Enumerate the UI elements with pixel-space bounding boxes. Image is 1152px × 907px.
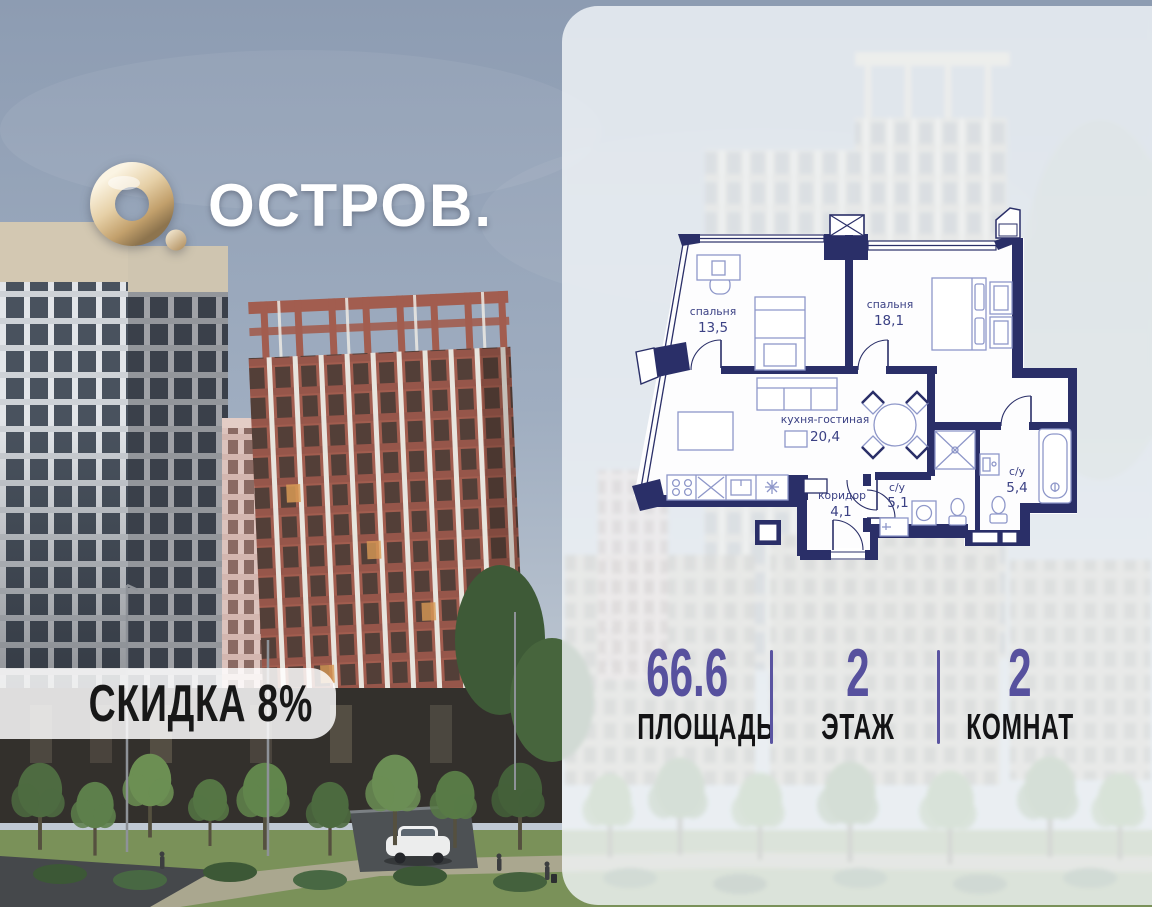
- stat-floor-label: ЭТАЖ: [776, 709, 940, 745]
- room-name-bathroom1: с/у: [889, 481, 906, 494]
- promo-card: ОСТРОВ. СКИДКА 8%: [0, 0, 1152, 907]
- room-area-bathroom1: 5,1: [887, 495, 908, 511]
- room-name-bedroom2: спальня: [867, 298, 913, 311]
- brand-logo-icon: [80, 150, 192, 254]
- discount-badge-label: СКИДКА 8%: [89, 678, 313, 730]
- room-area-kitchen-living: 20,4: [810, 429, 840, 445]
- stat-area: 66.6 ПЛОЩАДЬ: [605, 641, 769, 745]
- stat-floor-value: 2: [846, 641, 869, 705]
- room-name-kitchen-living: кухня-гостиная: [781, 413, 869, 426]
- stat-rooms: 2 КОМНАТ: [938, 641, 1102, 745]
- stats-divider-1: [770, 650, 773, 744]
- room-area-bedroom2: 18,1: [874, 313, 904, 329]
- stat-rooms-label: КОМНАТ: [938, 709, 1102, 745]
- stat-floor: 2 ЭТАЖ: [776, 641, 940, 745]
- stat-area-label: ПЛОЩАДЬ: [605, 709, 769, 745]
- floor-plan: спальня 13,5 спальня 18,1 кухня-гостиная…: [628, 198, 1108, 560]
- room-area-corridor: 4,1: [830, 504, 851, 520]
- brand-name: ОСТРОВ.: [208, 176, 493, 236]
- discount-badge: СКИДКА 8%: [0, 668, 336, 739]
- room-name-bathroom2: с/у: [1009, 465, 1026, 478]
- room-area-bedroom1: 13,5: [698, 320, 728, 336]
- stat-rooms-value: 2: [1008, 641, 1031, 705]
- stat-area-value: 66.6: [646, 641, 728, 705]
- room-name-corridor: коридор: [818, 489, 866, 502]
- room-name-bedroom1: спальня: [690, 305, 736, 318]
- room-area-bathroom2: 5,4: [1006, 480, 1027, 496]
